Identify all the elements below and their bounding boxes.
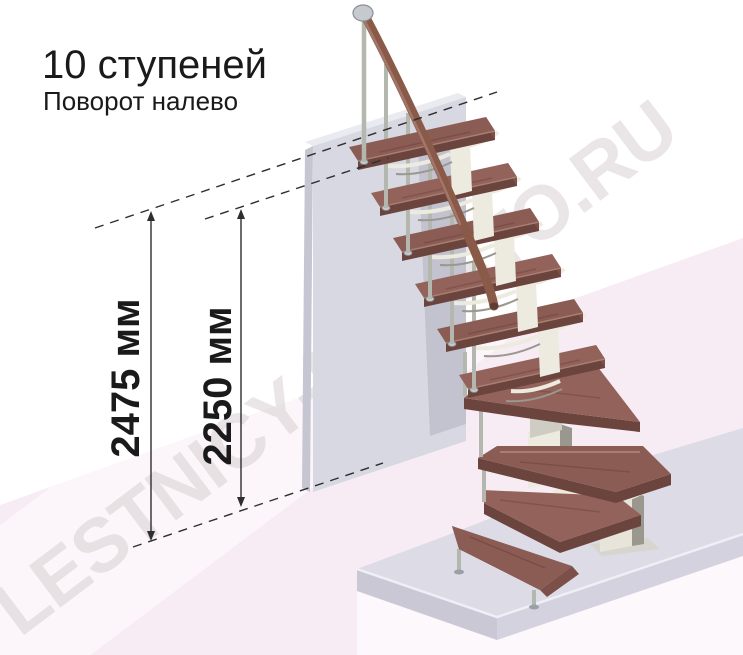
leg-foot xyxy=(529,605,539,610)
arrow-up xyxy=(237,209,245,219)
spine-bracket xyxy=(450,145,472,196)
spine-bracket xyxy=(538,327,560,377)
leg-foot xyxy=(454,570,464,575)
dimension-label-2475: 2475 мм xyxy=(104,298,148,457)
dimension-top-step-height: 2250 мм xyxy=(196,209,245,507)
handrail-top-cap xyxy=(353,5,373,21)
handrail-end-cap xyxy=(490,303,499,310)
staircase-diagram: LESTNICY-PROSTO.RU xyxy=(0,0,743,655)
spine-bracket xyxy=(472,191,494,241)
spine-bracket xyxy=(516,282,538,332)
arrow-up xyxy=(147,211,155,221)
spine-bracket xyxy=(494,236,516,286)
page-title: 10 ступеней xyxy=(42,43,267,87)
page-subtitle: Поворот налево xyxy=(43,86,238,116)
header: 10 ступеней Поворот налево xyxy=(42,43,267,116)
diagram-canvas: LESTNICY-PROSTO.RU xyxy=(0,0,743,655)
dimension-label-2250: 2250 мм xyxy=(196,306,240,465)
